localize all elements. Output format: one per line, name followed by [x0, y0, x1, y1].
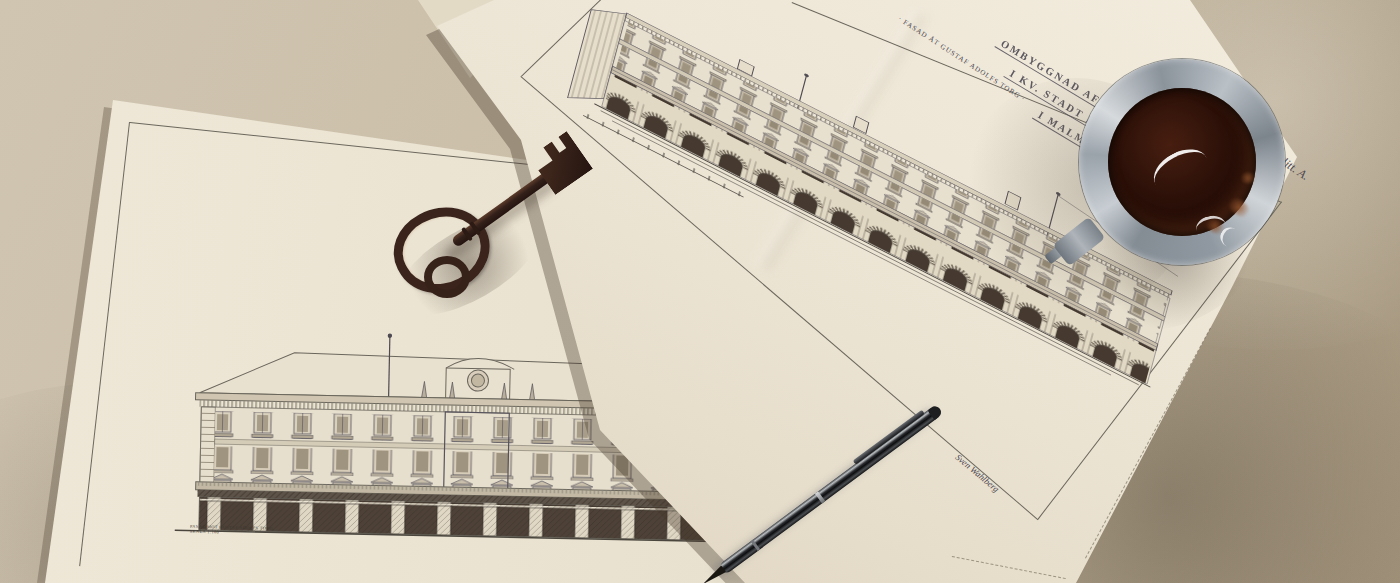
pen-clip — [853, 410, 925, 465]
sheet-a-caption: FASAD MOT GUSTAF ADOLFS TORG SKALA 1:100 — [190, 524, 273, 536]
key-collar-ridge — [461, 227, 473, 242]
coffee-crema — [1240, 172, 1256, 184]
skeleton-key — [388, 118, 608, 308]
coffee-highlight — [1146, 141, 1215, 202]
pen-body — [718, 406, 941, 575]
coffee-glass — [1079, 59, 1285, 265]
coffee-surface — [1108, 88, 1256, 236]
pen-ring — [751, 540, 761, 551]
desk-scene: { "scene": { "description": "Two vintage… — [0, 0, 1400, 583]
pen-end-cap — [927, 404, 943, 420]
ballpoint-pen — [712, 392, 992, 583]
key-collar-ridge — [469, 221, 481, 236]
coffee-crema — [1224, 193, 1254, 221]
pen-center-ring — [815, 491, 825, 503]
key-bow-lobe — [424, 256, 470, 298]
